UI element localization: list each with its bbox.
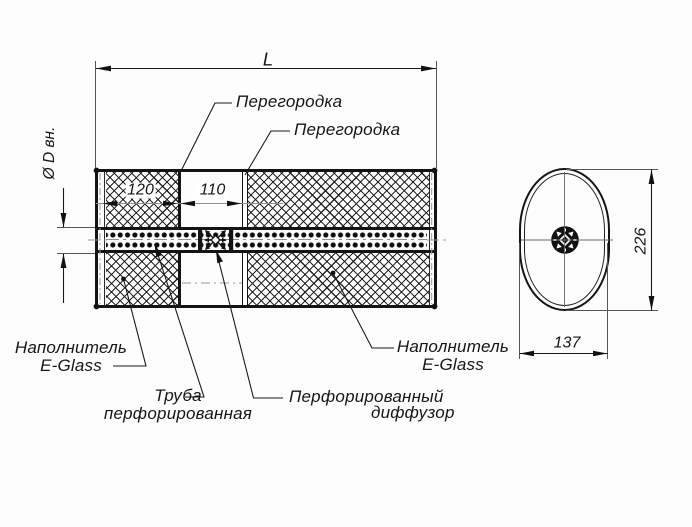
diffuser-end-glyph bbox=[548, 223, 582, 257]
filler-block-bottom-left bbox=[106, 253, 178, 305]
partition-2-lower bbox=[242, 253, 248, 305]
filler-block-top-right bbox=[247, 172, 429, 227]
muffler-technical-drawing: L Ø D вн. 120 110 Перегородка Перегородк… bbox=[0, 0, 692, 527]
diffuser-callout-line2: диффузор bbox=[371, 404, 455, 422]
filler-right-line1: Наполнитель bbox=[396, 338, 510, 356]
filler-left-line1: Наполнитель bbox=[14, 339, 128, 357]
filler-callout-right: Наполнитель E-Glass bbox=[396, 338, 510, 374]
inner-diameter-dimension bbox=[57, 188, 95, 303]
partition-1-upper bbox=[178, 172, 181, 227]
overall-length-dimension bbox=[96, 61, 437, 168]
filler-callout-left: Наполнитель E-Glass bbox=[14, 339, 128, 375]
shell-bottom-wall bbox=[95, 305, 437, 308]
partition-1-lower bbox=[178, 253, 181, 305]
end-width-dimension-text: 137 bbox=[554, 336, 581, 353]
filler-block-bottom-right bbox=[247, 253, 429, 305]
diffuser-side-glyph bbox=[196, 226, 236, 254]
pipe-bottom-wall bbox=[95, 250, 437, 253]
partition-callout-1: Перегородка bbox=[236, 93, 342, 111]
right-end-cap bbox=[434, 169, 437, 308]
filler-right-line2: E-Glass bbox=[396, 356, 510, 374]
left-end-cap bbox=[95, 169, 98, 308]
pipe-perforation-dots bbox=[106, 230, 427, 250]
chamber2-dimension-text: 110 bbox=[198, 183, 228, 200]
filler-left-line2: E-Glass bbox=[14, 357, 128, 375]
right-end-cap-inner-line bbox=[429, 172, 430, 305]
inner-diameter-label: Ø D вн. bbox=[42, 127, 58, 180]
overall-length-text: L bbox=[263, 49, 273, 68]
shell-top-wall bbox=[95, 169, 437, 172]
partition-2-upper bbox=[242, 172, 248, 227]
pipe-callout-line1: Труба bbox=[154, 387, 202, 405]
chamber1-dimension-text: 120 bbox=[125, 182, 156, 199]
partition-callout-2: Перегородка bbox=[294, 121, 400, 139]
end-height-dimension-text: 226 bbox=[634, 228, 651, 255]
pipe-callout-line2: перфорированная bbox=[104, 405, 252, 423]
left-end-cap-inner-line bbox=[104, 172, 105, 305]
